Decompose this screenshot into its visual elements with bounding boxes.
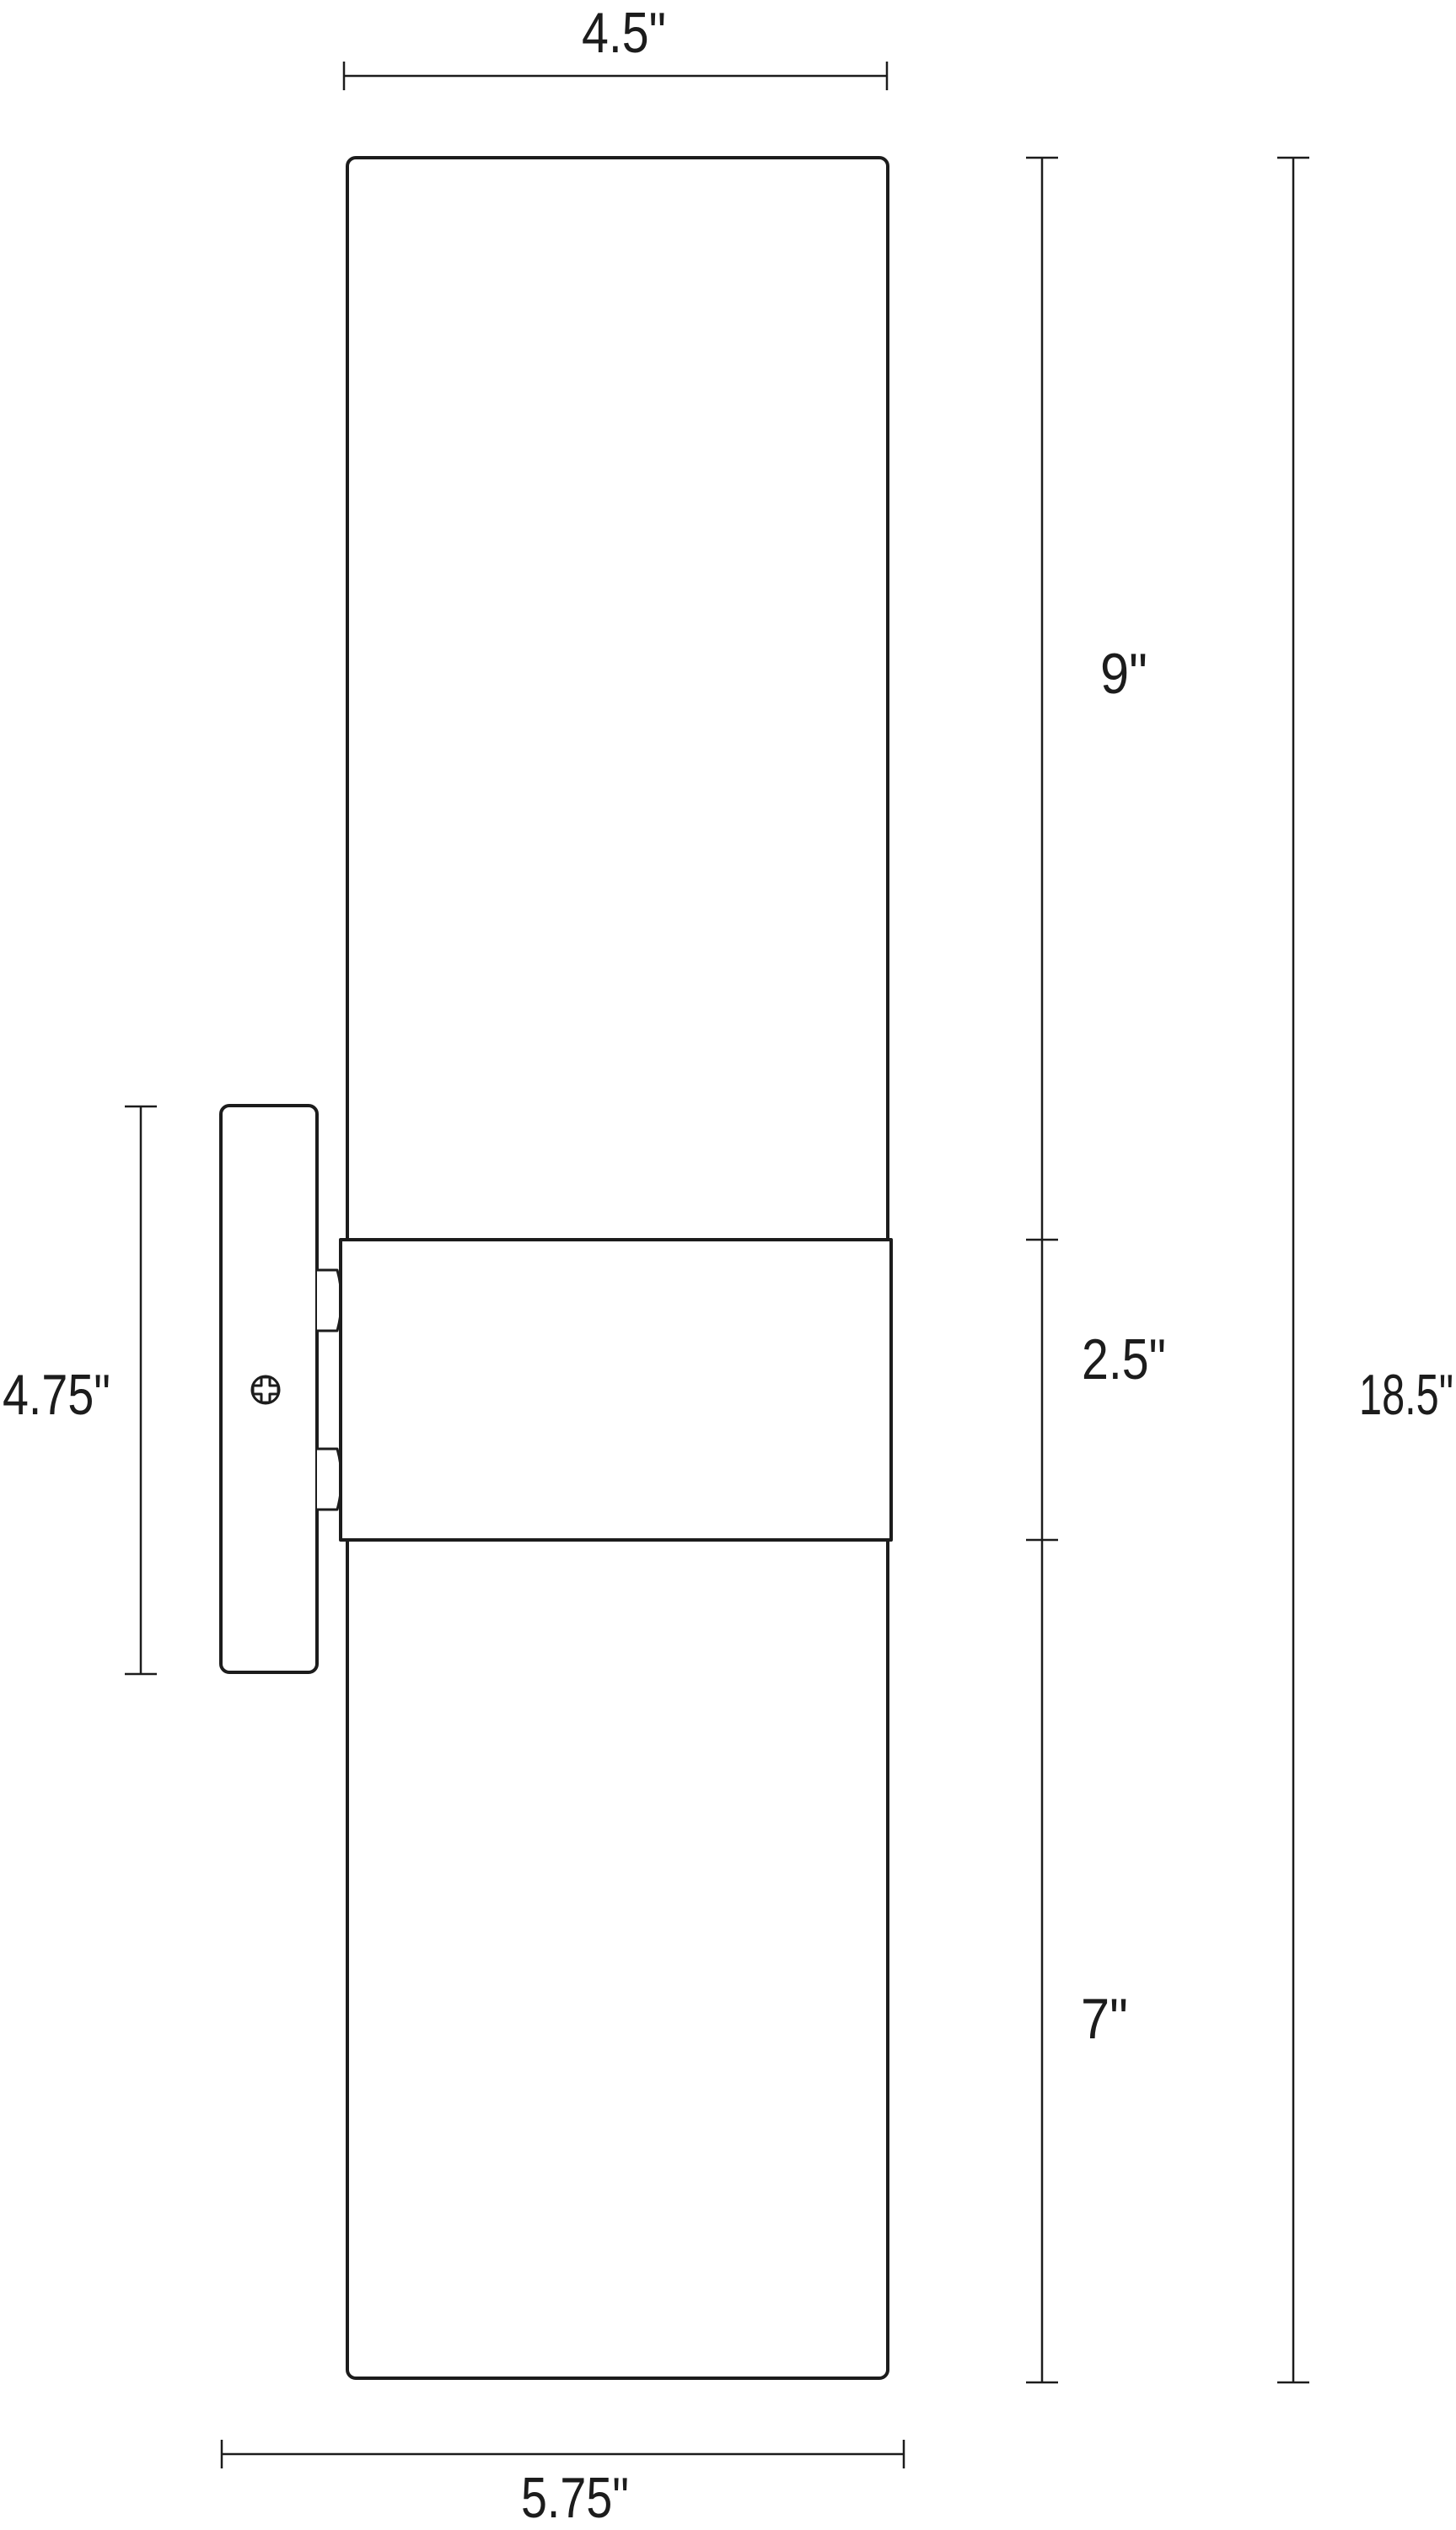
dimension-label-backplate-height: 4.75" bbox=[3, 1363, 110, 1427]
mounting-tab-lower-icon bbox=[317, 1449, 341, 1510]
mounting-tab-upper-icon bbox=[317, 1270, 341, 1331]
dimension-label-upper-shade-height: 9" bbox=[1100, 642, 1147, 706]
fixture-outline bbox=[221, 158, 891, 2378]
dimension-shade-width: 4.5" bbox=[344, 1, 887, 90]
dimension-label-overall-depth: 5.75" bbox=[521, 2466, 629, 2530]
dimension-backplate-height: 4.75" bbox=[3, 1106, 157, 1674]
dimension-label-shade-width: 4.5" bbox=[582, 1, 666, 65]
center-band bbox=[341, 1240, 891, 1540]
dimension-label-overall-height: 18.5" bbox=[1359, 1363, 1453, 1427]
phillips-screw-icon bbox=[252, 1376, 279, 1403]
dimension-overall-height: 18.5" bbox=[1277, 158, 1453, 2382]
dimension-drawing-canvas: 4.5" 9" 2.5" 7" 18.5" 4.75" bbox=[0, 0, 1456, 2530]
dimension-overall-depth: 5.75" bbox=[222, 2440, 904, 2530]
dimension-label-lower-shade-height: 7" bbox=[1081, 1987, 1128, 2051]
dimension-segmented-heights: 9" 2.5" 7" bbox=[1026, 158, 1166, 2382]
sconce-dimension-drawing: 4.5" 9" 2.5" 7" 18.5" 4.75" bbox=[0, 0, 1456, 2530]
dimension-label-band-height: 2.5" bbox=[1082, 1327, 1166, 1391]
